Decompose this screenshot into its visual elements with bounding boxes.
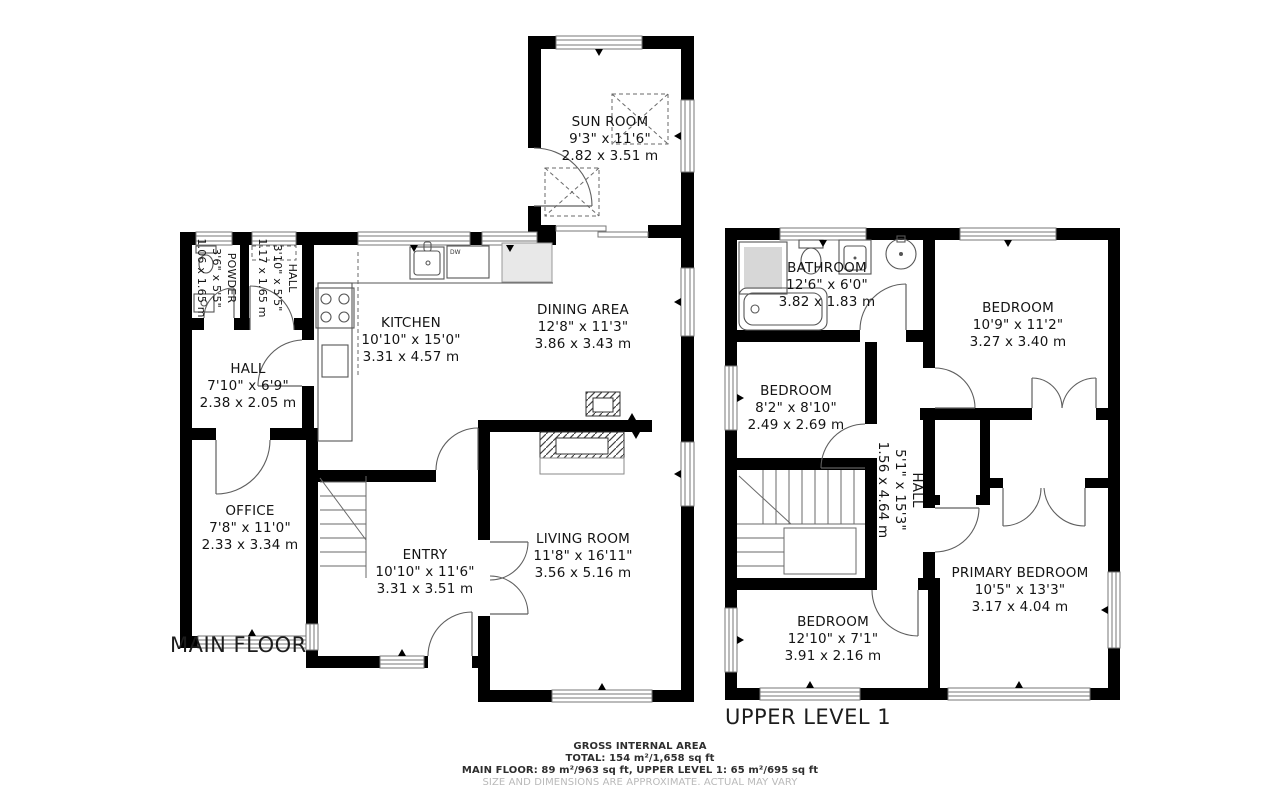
svg-text:2.33 x 3.34 m: 2.33 x 3.34 m xyxy=(202,537,299,553)
door-office xyxy=(216,440,270,494)
dishwasher-fixture: DW xyxy=(447,246,489,278)
svg-text:HALL: HALL xyxy=(909,472,925,508)
main-floor-title: MAIN FLOOR xyxy=(170,633,307,657)
room-label-hall: HALL 7'10" x 6'9" 2.38 x 2.05 m xyxy=(200,361,297,411)
svg-text:12'6" x 6'0": 12'6" x 6'0" xyxy=(786,277,868,293)
window xyxy=(556,36,642,49)
stairs-upper-level xyxy=(737,470,865,574)
svg-text:2.38 x 2.05 m: 2.38 x 2.05 m xyxy=(200,395,297,411)
room-label-hall-top: HALL 3'10" x 5'5" 1.17 x 1.65 m xyxy=(256,238,299,317)
room-label-bathroom: BATHROOM 12'6" x 6'0" 3.82 x 1.83 m xyxy=(779,260,876,310)
window xyxy=(380,656,424,668)
svg-text:BEDROOM: BEDROOM xyxy=(982,300,1054,316)
stairs-main-floor xyxy=(320,476,366,578)
footer-total-area: TOTAL: 154 m²/1,658 sq ft xyxy=(565,753,714,764)
fireplace xyxy=(540,392,624,474)
window xyxy=(948,688,1090,700)
svg-text:11'8" x 16'11": 11'8" x 16'11" xyxy=(533,548,632,564)
svg-text:3'6" x 5'5": 3'6" x 5'5" xyxy=(210,248,223,308)
upper-level-title: UPPER LEVEL 1 xyxy=(725,705,891,729)
svg-text:KITCHEN: KITCHEN xyxy=(381,315,441,331)
door-primary-bedroom xyxy=(935,508,979,552)
room-label-hall-upper: HALL 5'1" x 15'3" 1.56 x 4.64 m xyxy=(875,442,925,539)
svg-text:BEDROOM: BEDROOM xyxy=(797,614,869,630)
svg-text:SUN ROOM: SUN ROOM xyxy=(572,114,649,130)
floor-titles: MAIN FLOOR UPPER LEVEL 1 xyxy=(170,633,891,729)
window xyxy=(760,688,860,700)
footer: GROSS INTERNAL AREA TOTAL: 154 m²/1,658 … xyxy=(462,741,818,788)
svg-text:DINING AREA: DINING AREA xyxy=(537,302,629,318)
room-label-bedroom-bottom: BEDROOM 12'10" x 7'1" 3.91 x 2.16 m xyxy=(785,614,882,664)
svg-text:1.17 x 1.65 m: 1.17 x 1.65 m xyxy=(256,238,269,317)
room-label-kitchen: KITCHEN 10'10" x 15'0" 3.31 x 4.57 m xyxy=(361,315,460,365)
footer-disclaimer: SIZE AND DIMENSIONS ARE APPROXIMATE. ACT… xyxy=(482,777,798,788)
window xyxy=(306,624,318,650)
svg-text:12'8" x 11'3": 12'8" x 11'3" xyxy=(538,319,629,335)
svg-text:BEDROOM: BEDROOM xyxy=(760,383,832,399)
svg-text:3.27 x 3.40 m: 3.27 x 3.40 m xyxy=(970,334,1067,350)
front-door xyxy=(428,612,472,656)
svg-text:10'9" x 11'2": 10'9" x 11'2" xyxy=(973,317,1064,333)
svg-text:3'10" x 5'5": 3'10" x 5'5" xyxy=(271,244,284,311)
room-label-powder: POWDER 3'6" x 5'5" 1.06 x 1.65 m xyxy=(195,238,238,317)
svg-text:3.86 x 3.43 m: 3.86 x 3.43 m xyxy=(535,336,632,352)
stove-fixture xyxy=(316,288,354,328)
svg-text:8'2" x 8'10": 8'2" x 8'10" xyxy=(755,400,837,416)
svg-text:1.56 x 4.64 m: 1.56 x 4.64 m xyxy=(875,442,891,539)
svg-text:BATHROOM: BATHROOM xyxy=(787,260,867,276)
window xyxy=(681,268,694,336)
svg-text:3.56 x 5.16 m: 3.56 x 5.16 m xyxy=(535,565,632,581)
upper-level-plan: BATHROOM 12'6" x 6'0" 3.82 x 1.83 m BEDR… xyxy=(725,228,1120,700)
door-kitchen xyxy=(436,428,478,470)
window xyxy=(358,232,470,245)
svg-text:2.49 x 2.69 m: 2.49 x 2.69 m xyxy=(748,417,845,433)
svg-text:ENTRY: ENTRY xyxy=(403,547,448,563)
footer-floor-areas: MAIN FLOOR: 89 m²/963 sq ft, UPPER LEVEL… xyxy=(462,765,818,776)
svg-text:2.82 x 3.51 m: 2.82 x 3.51 m xyxy=(562,148,659,164)
svg-text:7'8" x 11'0": 7'8" x 11'0" xyxy=(209,520,291,536)
svg-text:3.17 x 4.04 m: 3.17 x 4.04 m xyxy=(972,599,1069,615)
basin-fixture xyxy=(886,236,916,269)
room-label-dining-area: DINING AREA 12'8" x 11'3" 3.86 x 3.43 m xyxy=(535,302,632,352)
svg-text:3.91 x 2.16 m: 3.91 x 2.16 m xyxy=(785,648,882,664)
window xyxy=(1108,572,1120,648)
footer-gross-internal-area: GROSS INTERNAL AREA xyxy=(573,741,706,752)
svg-text:5'1" x 15'3": 5'1" x 15'3" xyxy=(892,449,908,531)
dishwasher-label: DW xyxy=(450,249,461,256)
main-floor-plan: DW xyxy=(180,36,694,702)
svg-text:7'10" x 6'9": 7'10" x 6'9" xyxy=(207,378,289,394)
svg-text:10'10" x 15'0": 10'10" x 15'0" xyxy=(361,332,460,348)
room-label-office: OFFICE 7'8" x 11'0" 2.33 x 3.34 m xyxy=(202,503,299,553)
svg-text:9'3" x 11'6": 9'3" x 11'6" xyxy=(569,131,651,147)
window xyxy=(960,228,1056,240)
door-bedroom-top-right xyxy=(935,368,975,408)
svg-text:3.31 x 3.51 m: 3.31 x 3.51 m xyxy=(377,581,474,597)
window xyxy=(725,608,737,672)
svg-text:3.82 x 1.83 m: 3.82 x 1.83 m xyxy=(779,294,876,310)
room-label-primary-bedroom: PRIMARY BEDROOM 10'5" x 13'3" 3.17 x 4.0… xyxy=(952,565,1089,615)
svg-text:PRIMARY BEDROOM: PRIMARY BEDROOM xyxy=(952,565,1089,581)
room-label-living-room: LIVING ROOM 11'8" x 16'11" 3.56 x 5.16 m xyxy=(533,531,632,581)
svg-text:1.06 x 1.65 m: 1.06 x 1.65 m xyxy=(195,238,208,317)
window xyxy=(681,442,694,506)
svg-text:HALL: HALL xyxy=(230,361,266,377)
sliding-door-sun-room xyxy=(556,226,648,237)
shower-fixture xyxy=(739,242,787,294)
closet-bifold-bedroom-top-right xyxy=(1032,378,1096,408)
window xyxy=(725,366,737,430)
svg-text:OFFICE: OFFICE xyxy=(225,503,274,519)
window xyxy=(780,228,866,240)
room-label-sun-room: SUN ROOM 9'3" x 11'6" 2.82 x 3.51 m xyxy=(562,114,659,164)
window xyxy=(681,100,694,172)
room-label-entry: ENTRY 10'10" x 11'6" 3.31 x 3.51 m xyxy=(375,547,474,597)
svg-text:12'10" x 7'1": 12'10" x 7'1" xyxy=(788,631,879,647)
window xyxy=(552,690,652,702)
svg-text:10'5" x 13'3": 10'5" x 13'3" xyxy=(975,582,1066,598)
closet-bifold-primary-bedroom xyxy=(1003,488,1085,526)
room-label-bedroom-mid-left: BEDROOM 8'2" x 8'10" 2.49 x 2.69 m xyxy=(748,383,845,433)
svg-text:POWDER: POWDER xyxy=(225,253,238,304)
svg-text:3.31 x 4.57 m: 3.31 x 4.57 m xyxy=(363,349,460,365)
svg-text:LIVING ROOM: LIVING ROOM xyxy=(536,531,630,547)
svg-text:HALL: HALL xyxy=(286,264,299,294)
french-doors-living-room xyxy=(490,542,528,614)
floorplan-canvas: DW xyxy=(0,0,1280,799)
room-label-bedroom-top-right: BEDROOM 10'9" x 11'2" 3.27 x 3.40 m xyxy=(970,300,1067,350)
door-bedroom-bottom xyxy=(872,590,918,636)
svg-text:10'10" x 11'6": 10'10" x 11'6" xyxy=(375,564,474,580)
